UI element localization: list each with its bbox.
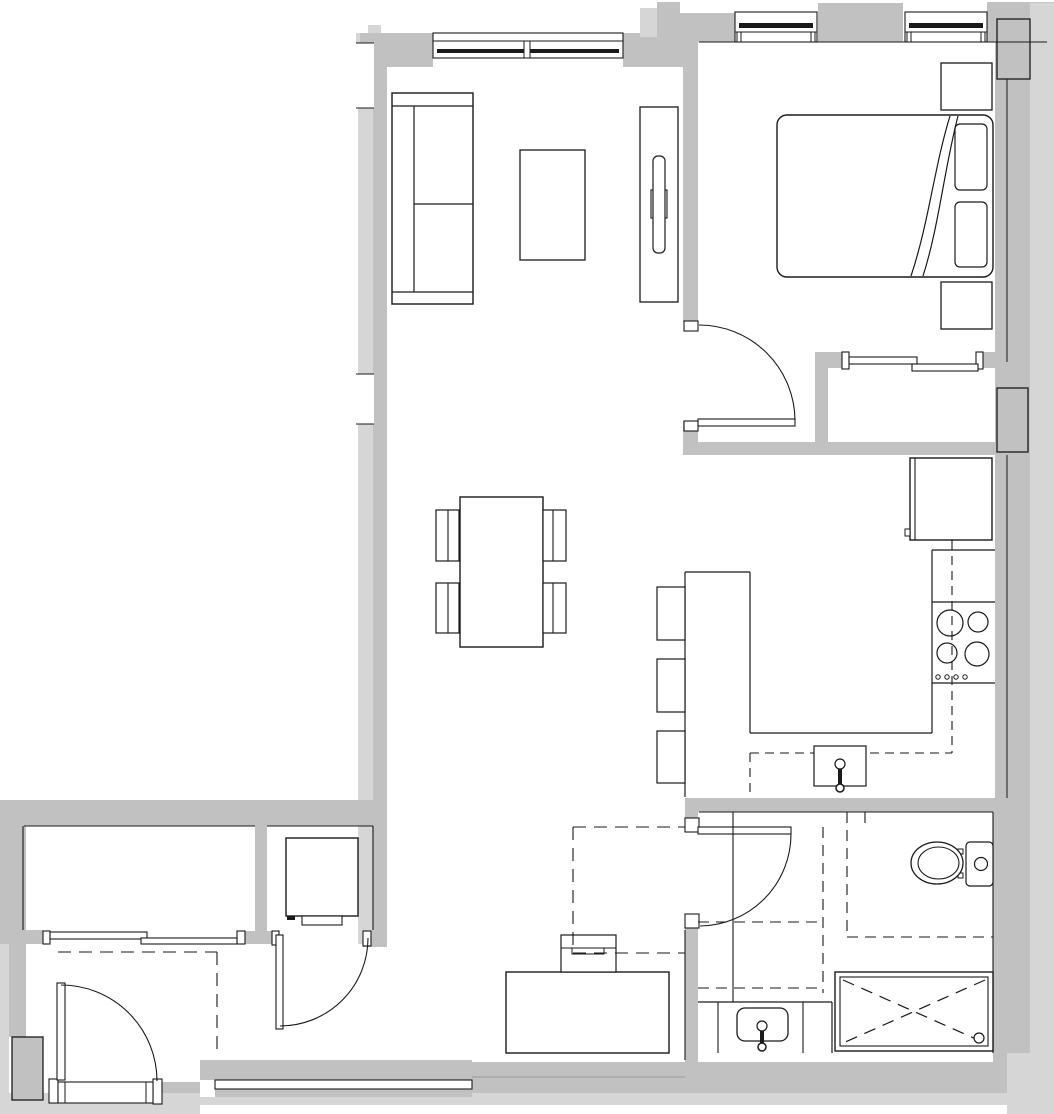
left-wall-light <box>0 944 9 1093</box>
partition-stub <box>245 931 272 944</box>
storage-top-wall <box>0 800 387 826</box>
bed-pillow-top <box>955 124 987 190</box>
bar-stool1 <box>657 587 685 640</box>
bedroom-door-jamb-bottom <box>684 421 698 431</box>
bathroom-faucet-knob <box>758 1043 766 1051</box>
bedroom-door-jamb-top <box>684 321 698 331</box>
bedroom-door-leaf <box>698 419 795 426</box>
bedroom-north-wall-west <box>680 13 735 42</box>
dining-chair-br <box>543 583 566 633</box>
left-wall-lower <box>9 944 26 1037</box>
north-junction-step <box>640 8 658 37</box>
bath-west-wall-lower <box>685 914 698 1077</box>
kitchen-bath-wall <box>685 798 995 812</box>
closet-slide-panel2 <box>912 364 978 371</box>
front-door-jamb-right <box>153 1079 162 1104</box>
column-closet <box>997 388 1028 452</box>
dining-chair-tr <box>543 510 566 561</box>
washer-mark <box>287 916 295 920</box>
floor-plan-svg <box>0 0 1054 1114</box>
bathroom-door-jamb-top <box>685 818 699 832</box>
storage-slide-cap-left <box>43 931 50 944</box>
storage-slide-cap-right <box>237 931 245 944</box>
tv-screen <box>653 156 665 253</box>
fridge <box>910 458 992 540</box>
closet-slide-cap-left <box>842 352 849 369</box>
bedroom-window1-glass <box>739 23 813 28</box>
desk <box>506 972 669 1053</box>
bottom-right-block <box>1007 1053 1054 1114</box>
fridge-handle <box>905 529 910 536</box>
toilet-flush-button <box>975 858 988 871</box>
closet-slide-panel1 <box>849 357 917 364</box>
toilet-bowl-inner <box>918 847 959 879</box>
storage-slide-stub <box>26 930 43 944</box>
bar-stool2 <box>657 659 685 712</box>
bathtub-inner <box>840 977 988 1046</box>
bedroom-window2-tab-right <box>981 32 985 42</box>
column-northeast <box>997 19 1030 79</box>
floor-plan <box>0 0 1054 1114</box>
bed-pillow-bottom <box>955 202 987 267</box>
dining-table <box>460 497 543 647</box>
north-junction-block <box>657 2 680 38</box>
bedroom-window2-tab-left <box>907 32 911 42</box>
nw-tab <box>368 25 381 33</box>
nightstand-top <box>941 63 992 110</box>
storage-slide-panel2 <box>141 938 237 944</box>
bedroom-south-wall <box>683 442 1007 455</box>
bottom-wall-entry-light <box>200 1097 472 1105</box>
bar-stool3 <box>657 731 685 783</box>
living-window-mullion <box>524 41 530 58</box>
storage-slide-panel1 <box>50 932 147 939</box>
nightstand-bottom <box>941 282 992 329</box>
bathroom-door-leaf <box>698 827 791 834</box>
west-niche2 <box>356 374 374 424</box>
bottom-wall-entry-low <box>215 1089 472 1097</box>
left-wall-upper <box>0 800 26 944</box>
closet-door-stub-left <box>815 352 842 368</box>
bedroom-window1-tab-left <box>737 32 741 42</box>
laundry-door-jamb-right <box>363 931 371 946</box>
laundry-east-wall <box>373 800 387 947</box>
bedroom-north-wall-pier <box>818 3 903 42</box>
east-strip <box>1030 3 1054 1114</box>
column-southwest <box>12 1037 43 1100</box>
bedroom-window2-glass <box>909 23 983 28</box>
bottom-light-right <box>472 1093 1030 1105</box>
bathtub-drain <box>974 1033 984 1043</box>
bedroom-window1-tab-right <box>811 32 815 42</box>
partition-wall <box>255 826 267 944</box>
bottom-wall-entry <box>200 1060 472 1080</box>
closet-door-stub-right <box>983 352 1007 368</box>
kitchen-faucet-knob <box>836 784 844 792</box>
bottom-window-slot <box>215 1080 472 1089</box>
bedroom-west-wall <box>683 42 698 322</box>
front-door-leaf <box>57 983 65 1080</box>
washer-tray <box>302 916 342 925</box>
coffee-table <box>520 150 585 260</box>
front-door-jamb-left <box>49 1079 58 1103</box>
sofa <box>392 93 473 304</box>
kitchen-faucet <box>835 759 845 769</box>
front-door-threshold <box>58 1082 153 1103</box>
washer <box>286 838 358 916</box>
west-niche1 <box>356 43 374 108</box>
laundry-door-leaf <box>276 935 283 1029</box>
bathroom-door-jamb-bottom <box>685 914 699 928</box>
east-wall-lower <box>993 798 1030 1093</box>
bathroom-faucet <box>757 1021 767 1031</box>
